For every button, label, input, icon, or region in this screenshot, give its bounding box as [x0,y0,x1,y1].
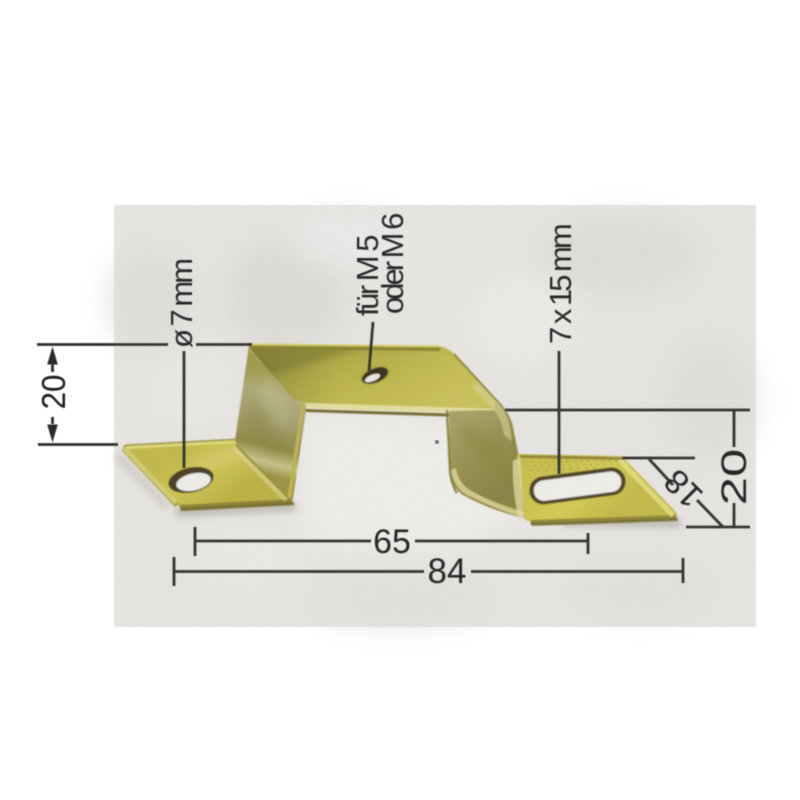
svg-text:20: 20 [35,375,72,410]
